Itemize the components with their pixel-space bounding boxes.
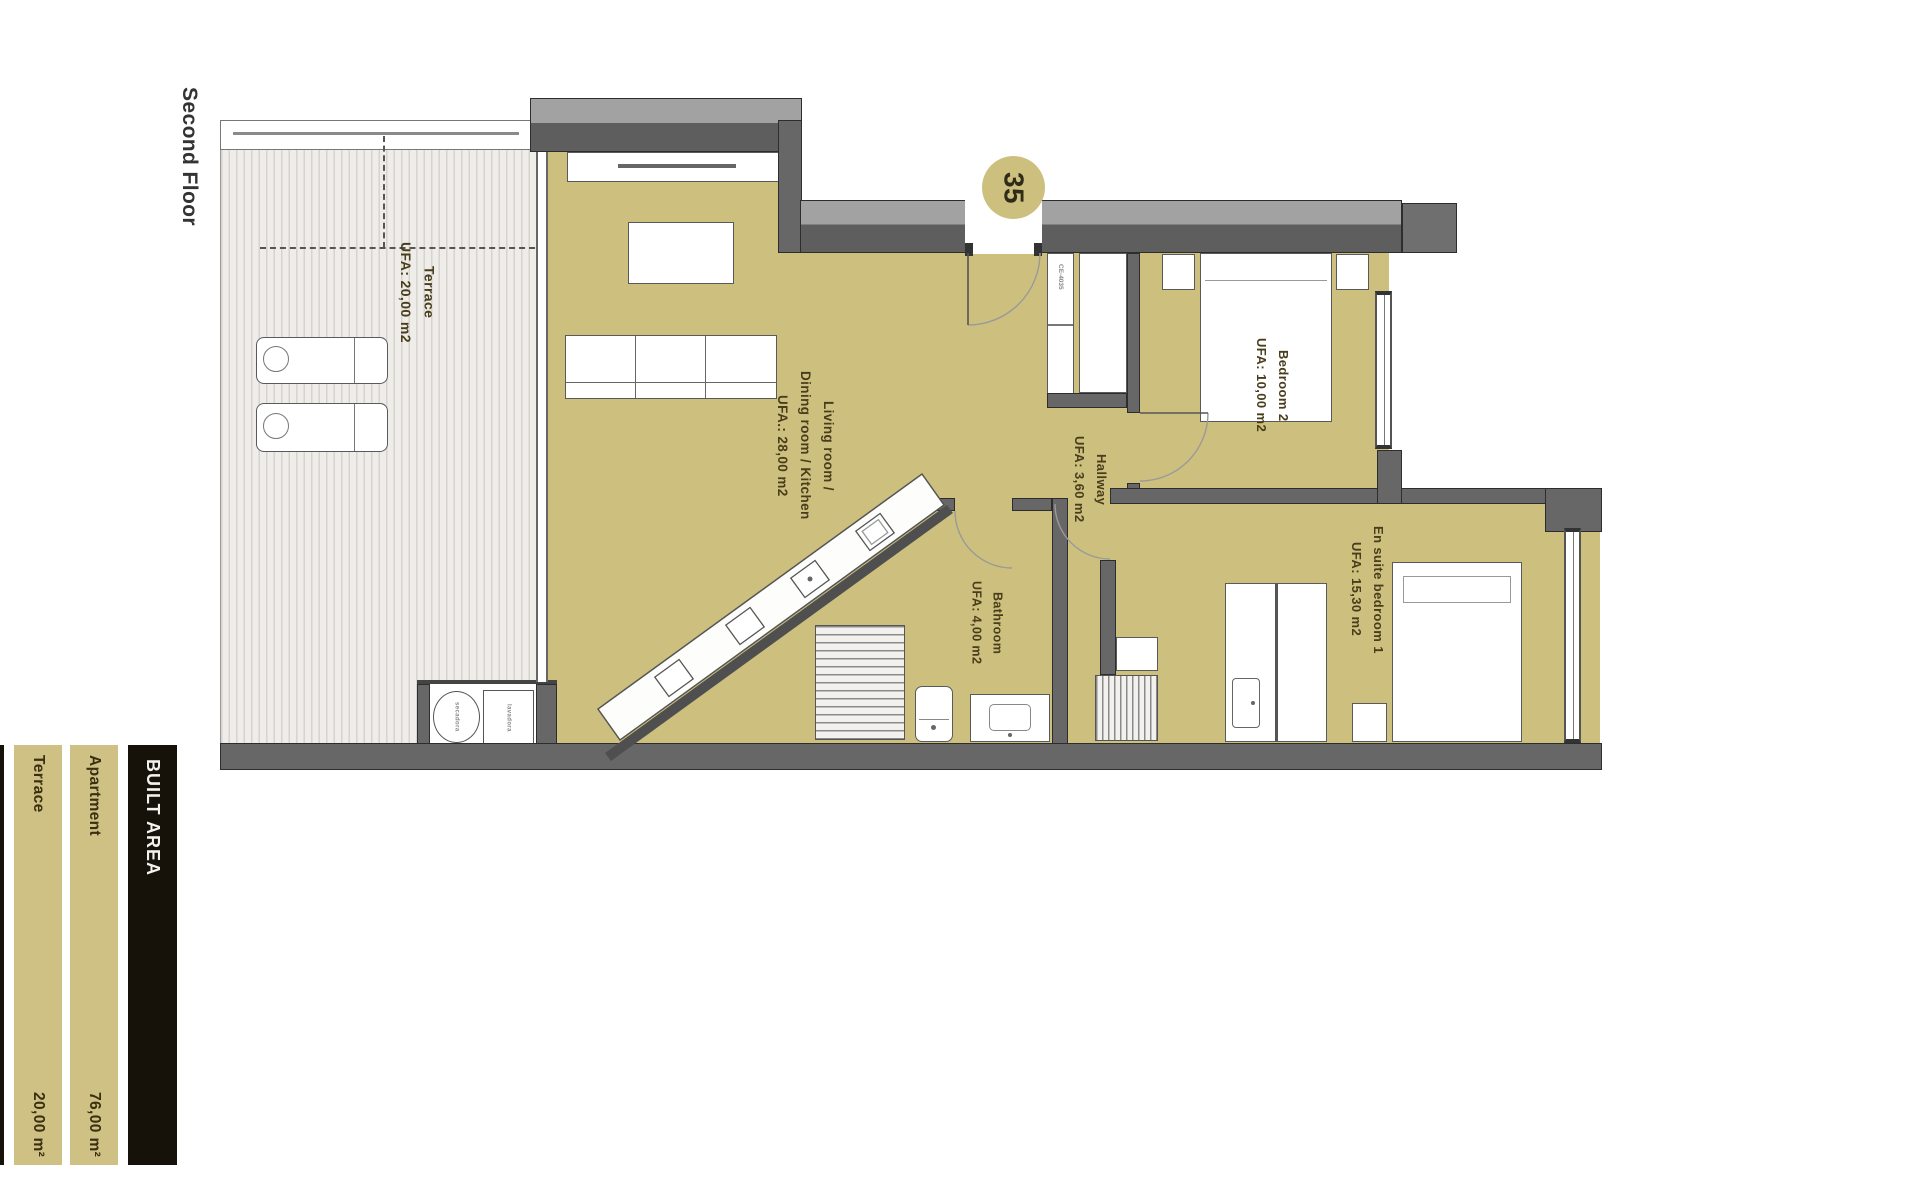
toilet-flush-dot	[931, 725, 936, 730]
sink-basin	[989, 704, 1031, 731]
window-line	[618, 164, 736, 168]
sofa-divider	[635, 336, 636, 398]
wall-bathroom-top-left	[908, 498, 955, 511]
dryer-label: secadora	[454, 702, 460, 732]
ensuite-shower-tray	[1116, 637, 1158, 671]
toilet-seat-line	[919, 719, 949, 720]
laundry-wall-left	[417, 684, 430, 749]
tv-sideboard	[628, 222, 734, 284]
wall-pillar-topright	[1402, 203, 1457, 253]
wall-below-wardrobe	[1047, 393, 1127, 408]
lounger-wheel	[263, 413, 289, 439]
closet-divider	[1048, 324, 1073, 326]
door-frame-tick	[1034, 243, 1042, 256]
window-glass-line	[1384, 295, 1385, 445]
ensuite-shower-wall	[1100, 560, 1116, 675]
room-label-bathroom: Bathroom UFA: 4,00 m2	[965, 578, 1008, 668]
lounger	[256, 337, 388, 384]
sofa-seat-line	[566, 382, 776, 383]
wall-corner-block	[1545, 488, 1602, 532]
table-row-terrace: Terrace 20,00 m²	[14, 745, 62, 1165]
door-frame-tick	[965, 243, 973, 256]
wall-step	[778, 120, 802, 253]
bedroom2-window	[1375, 291, 1392, 449]
room-label-bedroom2: Bedroom 2 UFA: 10,00 m2	[1250, 318, 1294, 453]
unit-number-badge: 35	[982, 156, 1045, 219]
sofa-divider	[705, 336, 706, 398]
ensuite-bed	[1392, 562, 1522, 742]
table-row-label: Terrace	[29, 755, 47, 813]
wall-bottom	[220, 743, 1602, 770]
unit-number: 35	[998, 172, 1030, 204]
laundry-wall-right	[536, 684, 557, 749]
toilet	[915, 686, 953, 742]
window-glass-line	[1573, 532, 1574, 739]
wardrobe-divider	[1275, 584, 1278, 741]
sofa	[565, 335, 777, 399]
terrace-glass-wall	[536, 150, 548, 682]
laundry-nook: secadora lavadora	[417, 680, 557, 745]
wall-top-main	[800, 200, 1402, 253]
dryer-machine: secadora	[433, 691, 480, 743]
terrace-railing	[220, 120, 532, 150]
wall-top-living	[530, 98, 802, 152]
page-title: Second Floor	[177, 66, 201, 246]
table-row-value: 20,00 m²	[29, 1092, 47, 1157]
exterior-notch-right	[1389, 95, 1920, 488]
railing-line	[233, 132, 519, 135]
ensuite-window	[1564, 528, 1581, 743]
room-label-hallway: Hallway UFA: 3,60 m2	[1068, 412, 1112, 547]
wardrobe-door	[1232, 678, 1260, 728]
door-handle-dot	[1251, 701, 1255, 705]
lounger-divider	[354, 404, 355, 451]
lounger	[256, 403, 388, 452]
nightstand	[1162, 254, 1195, 290]
table-row-apartment: Apartment 76,00 m²	[70, 745, 118, 1165]
table-title: BUILT AREA	[142, 759, 163, 876]
sink-faucet-dot	[1008, 733, 1012, 737]
room-label-living: Living room / Dining room / Kitchen UFA.…	[770, 348, 839, 543]
hall-wardrobe	[1079, 253, 1127, 393]
table-row-value: 76,00 m²	[85, 1092, 103, 1157]
bathroom-sink	[970, 694, 1050, 742]
floor-plan-page: Second Floor Terrace UFA: 20,00 m2 secad…	[0, 0, 1920, 1200]
table-row-label: Apartment	[85, 755, 103, 836]
nightstand	[1352, 703, 1387, 742]
nightstand	[1336, 254, 1369, 290]
lounger-wheel	[263, 346, 289, 372]
bed-pillow	[1403, 576, 1511, 603]
washer-machine: lavadora	[483, 690, 534, 745]
terrace-ufa-dash-vertical	[383, 136, 385, 248]
closet-code-label: CE-4035	[1057, 264, 1064, 290]
wall-bathroom-top-right	[1012, 498, 1052, 511]
living-window-sill	[567, 152, 783, 182]
ensuite-shower	[1095, 675, 1158, 741]
room-label-ensuite: En suite bedroom 1 UFA: 15,30 m2	[1345, 487, 1389, 692]
room-label-terrace: Terrace UFA: 20,00 m2	[393, 222, 441, 362]
wall-hall-bedroom2	[1127, 253, 1140, 413]
entry-closet: CE-4035	[1047, 253, 1074, 396]
washer-label: lavadora	[506, 704, 512, 732]
table-header: BUILT AREA	[128, 745, 177, 1165]
ensuite-wardrobe	[1225, 583, 1327, 742]
bathroom-shower	[815, 625, 905, 740]
wall-bathroom-right	[1052, 498, 1068, 745]
bed-pillow-line	[1205, 280, 1327, 281]
lounger-divider	[354, 338, 355, 383]
table-edge-sliver	[0, 745, 4, 1165]
